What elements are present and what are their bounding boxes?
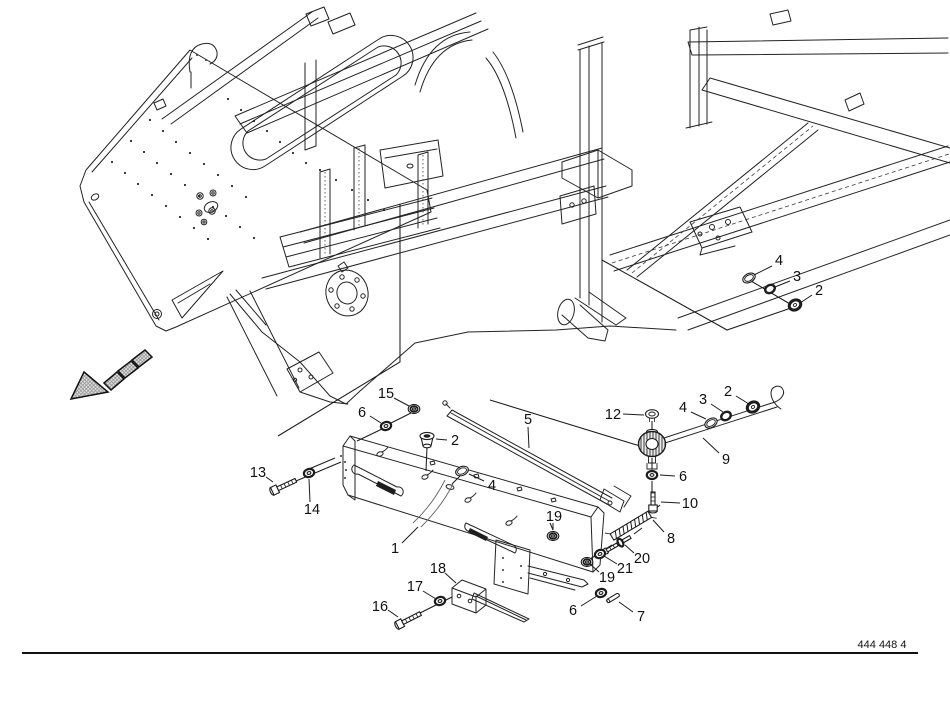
svg-text:18: 18 [430,561,446,577]
mount-bracket-part-1 [341,436,604,594]
part-7-pin-icon [606,593,620,603]
svg-text:5: 5 [524,412,532,428]
svg-text:6: 6 [358,405,366,421]
part-label-19: 19 [590,564,615,586]
part-21-washer-icon [594,548,607,559]
svg-text:15: 15 [378,386,394,402]
svg-text:13: 13 [250,465,266,481]
part-label-19: 19 [546,509,562,530]
machine-frame-drawing [80,7,950,404]
part-label-2: 2 [800,283,823,303]
svg-text:6: 6 [679,469,687,485]
part-label-6: 6 [569,596,597,619]
part-12-screw-top-icon [646,410,659,422]
part-3-ring-dark-icon [720,410,733,422]
svg-text:4: 4 [488,478,496,494]
svg-text:10: 10 [682,496,698,512]
svg-text:3: 3 [699,392,707,408]
part-label-9: 9 [703,438,730,468]
part-16-bolt-icon [394,610,423,630]
part-label-2: 2 [436,433,459,449]
drawing-number: 444 448 4 [858,639,907,651]
part-label-14: 14 [304,479,320,518]
part-label-1: 1 [391,527,418,557]
part-label-4: 4 [754,253,783,275]
svg-text:7: 7 [637,609,645,625]
svg-text:4: 4 [775,253,783,269]
part-label-16: 16 [372,599,398,617]
part-6-washer-icon [380,421,392,431]
direction-arrow-icon [71,350,152,399]
part-label-8: 8 [653,520,675,547]
part-label-2: 2 [724,384,749,404]
svg-text:2: 2 [815,283,823,299]
part-10-bolt-icon [649,492,657,513]
part-6-washer-icon [647,471,657,479]
part-3-ring-dark-icon [764,283,776,295]
part-4-ring-flat-icon [703,416,719,430]
part-15-nut-icon [408,404,420,413]
svg-text:2: 2 [451,433,459,449]
part-17-washer-icon [434,596,446,606]
svg-text:6: 6 [569,603,577,619]
part-9-knob-icon [639,429,666,469]
svg-text:12: 12 [605,407,621,423]
svg-text:16: 16 [372,599,388,615]
part-label-13: 13 [250,465,273,482]
scraper-blade [472,593,529,622]
part-symbols [269,271,803,630]
diagram-canvas: 4322341296105156241314119820211967181716… [0,0,950,725]
svg-text:14: 14 [304,502,320,518]
part-14-washer-icon [303,468,315,478]
part-label-18: 18 [430,561,456,583]
part-label-10: 10 [661,496,698,512]
svg-text:17: 17 [407,579,423,595]
part-2-ring-dark-big-icon [745,400,760,414]
part-19-nut-icon [547,531,559,540]
part-label-7: 7 [619,602,645,625]
part-labels: 4322341296105156241314119820211967181716 [250,253,823,625]
part-8-spring-icon [605,506,657,545]
svg-text:1: 1 [391,541,399,557]
svg-text:8: 8 [667,531,675,547]
svg-text:21: 21 [617,561,633,577]
exploded-parts-diagram-page: 4322341296105156241314119820211967181716… [0,0,950,725]
part-2-ring-dark-big-icon [787,298,802,312]
svg-text:4: 4 [679,400,687,416]
svg-text:9: 9 [722,452,730,468]
support-beam-part-5 [443,401,631,512]
part-label-17: 17 [407,579,436,599]
part-label-6: 6 [660,469,687,485]
svg-text:19: 19 [546,509,562,525]
svg-text:2: 2 [724,384,732,400]
part-label-12: 12 [605,407,644,423]
part-label-3: 3 [699,392,723,412]
part-2-plug-icon [420,432,434,447]
part-label-6: 6 [358,405,381,423]
part-label-15: 15 [378,386,409,406]
svg-text:3: 3 [793,269,801,285]
svg-text:20: 20 [634,551,650,567]
part-label-5: 5 [524,412,532,448]
svg-text:19: 19 [599,570,615,586]
part-13-bolt-icon [269,476,298,495]
